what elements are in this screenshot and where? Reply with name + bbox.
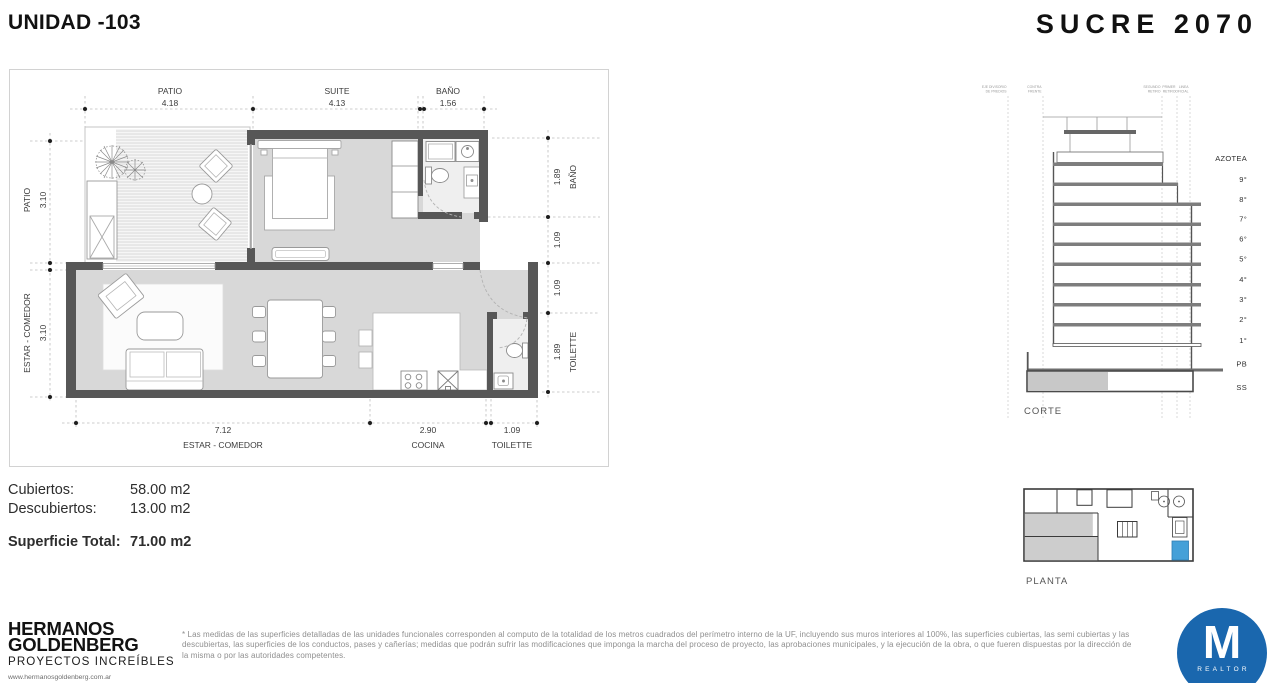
toilette-wc-tank xyxy=(523,343,529,358)
svg-text:PRIMER: PRIMER xyxy=(1162,85,1176,89)
dim-right-value-1: 1.09 xyxy=(552,231,562,248)
dim-top-value-2: 1.56 xyxy=(440,98,457,108)
dim-top-room-0: PATIO xyxy=(158,86,183,96)
section-axis-labels: EJE DIVISORIO DE PREDIOS CONTRA FRENTE S… xyxy=(982,85,1189,94)
floor-label-azotea: AZOTEA xyxy=(1215,154,1247,163)
key-plan: PLANTA xyxy=(1013,484,1203,594)
patio-lounge xyxy=(87,181,117,259)
patio-deck xyxy=(116,129,248,262)
dining-table xyxy=(253,300,336,378)
floor-labels: AZOTEA 9° 8° 7° 6° 5° 4° 3° 2° 1° PB SS xyxy=(1215,154,1247,392)
floor-label-6: 6° xyxy=(1239,235,1247,244)
svg-text:SEGUNDO: SEGUNDO xyxy=(1143,85,1161,89)
coffee-table xyxy=(137,312,183,340)
brand-url: www.hermanosgoldenberg.com.ar xyxy=(8,674,175,681)
realtor-logo: M REALTOR xyxy=(1177,608,1267,683)
svg-text:DE PREDIOS: DE PREDIOS xyxy=(986,90,1008,94)
pool xyxy=(1172,541,1189,560)
dim-top-value-0: 4.18 xyxy=(162,98,179,108)
area-label: Cubiertos: xyxy=(8,481,130,499)
bed-bench xyxy=(272,248,329,261)
sliding-door xyxy=(433,264,463,269)
area-summary: Cubiertos: 58.00 m2 Descubiertos: 13.00 … xyxy=(8,481,191,551)
patio xyxy=(85,127,250,264)
total-area-label: Superficie Total: xyxy=(8,533,130,551)
svg-text:CONTRA: CONTRA xyxy=(1027,85,1042,89)
dim-bottom-value-0: 7.12 xyxy=(215,425,232,435)
dim-right-room-0: BAÑO xyxy=(568,165,578,189)
dim-bottom-room-0: ESTAR - COMEDOR xyxy=(183,440,263,450)
dim-bottom-value-1: 2.90 xyxy=(420,425,437,435)
building-profile xyxy=(1027,117,1223,392)
brand-tagline: PROYECTOS INCREÍBLES xyxy=(8,655,175,668)
dim-top-room-1: SUITE xyxy=(324,86,349,96)
area-value: 58.00 m2 xyxy=(130,481,191,499)
area-value: 13.00 m2 xyxy=(130,500,191,518)
key-plan-title: PLANTA xyxy=(1026,576,1068,587)
unit-highlight xyxy=(1025,536,1098,560)
dim-right-value-3: 1.89 xyxy=(552,343,562,360)
floor-label-3: 3° xyxy=(1239,295,1247,304)
kitchen-sink xyxy=(438,371,458,390)
realtor-logo-initial: M xyxy=(1203,619,1241,665)
dim-top-value-1: 4.13 xyxy=(329,98,346,108)
dim-right-value-0: 1.89 xyxy=(552,168,562,185)
floor-label-ss: SS xyxy=(1236,383,1247,392)
svg-text:LINEA: LINEA xyxy=(1179,85,1190,89)
dim-top-room-2: BAÑO xyxy=(436,86,460,96)
dim-left-room-0: PATIO xyxy=(22,187,32,212)
svg-text:EJE DIVISORIO: EJE DIVISORIO xyxy=(982,85,1007,89)
building-section: EJE DIVISORIO DE PREDIOS CONTRA FRENTE S… xyxy=(980,80,1260,425)
dim-left-room-1: ESTAR - COMEDOR xyxy=(22,293,32,373)
svg-text:OFICIAL: OFICIAL xyxy=(1175,90,1188,94)
sofa xyxy=(126,349,203,390)
patio-table xyxy=(192,184,212,204)
floor-label-9: 9° xyxy=(1239,175,1247,184)
bathtub xyxy=(426,142,455,162)
bathroom xyxy=(423,139,480,213)
area-label: Descubiertos: xyxy=(8,500,130,518)
wc-bowl xyxy=(432,169,449,183)
toilette xyxy=(493,319,528,390)
floor-slabs xyxy=(1027,163,1223,372)
total-area-value: 71.00 m2 xyxy=(130,533,191,551)
floor-label-pb: PB xyxy=(1236,360,1247,369)
realtor-logo-label: REALTOR xyxy=(1194,666,1250,673)
brand-line-2: GOLDENBERG xyxy=(8,637,175,653)
svg-text:RETIRO: RETIRO xyxy=(1163,90,1176,94)
dim-bottom-room-1: COCINA xyxy=(411,440,444,450)
svg-text:RETIRO: RETIRO xyxy=(1148,90,1161,94)
svg-text:FRENTE: FRENTE xyxy=(1028,90,1042,94)
developer-logo: HERMANOS GOLDENBERG PROYECTOS INCREÍBLES… xyxy=(8,621,175,681)
floor-label-1: 1° xyxy=(1239,336,1247,345)
project-title: SUCRE 2070 xyxy=(1036,9,1258,40)
floor-label-7: 7° xyxy=(1239,215,1247,224)
section-title: CORTE xyxy=(1024,406,1062,417)
dim-left-value-0: 3.10 xyxy=(38,191,48,208)
unit-highlight xyxy=(1025,513,1093,537)
dim-bottom-room-2: TOILETTE xyxy=(492,440,533,450)
closet xyxy=(392,141,418,218)
dim-right-room-3: TOILETTE xyxy=(568,331,578,372)
dim-bottom-value-2: 1.09 xyxy=(504,425,521,435)
dim-right-value-2: 1.09 xyxy=(552,279,562,296)
dim-left-value-1: 3.10 xyxy=(38,324,48,341)
toilette-wc-bowl xyxy=(507,344,523,358)
floor-label-4: 4° xyxy=(1239,275,1247,284)
floor-plan-drawing: PATIO 4.18 SUITE 4.13 BAÑO 1.56 PATIO 3.… xyxy=(0,0,640,470)
legal-disclaimer: * Las medidas de las superficies detalla… xyxy=(182,630,1132,661)
basement xyxy=(1027,352,1193,392)
stove xyxy=(401,371,427,390)
floor-label-8: 8° xyxy=(1239,195,1247,204)
floor-label-2: 2° xyxy=(1239,315,1247,324)
brochure-page: UNIDAD -103 SUCRE 2070 xyxy=(0,0,1280,683)
wc-tank xyxy=(426,167,432,184)
floor-label-5: 5° xyxy=(1239,255,1247,264)
